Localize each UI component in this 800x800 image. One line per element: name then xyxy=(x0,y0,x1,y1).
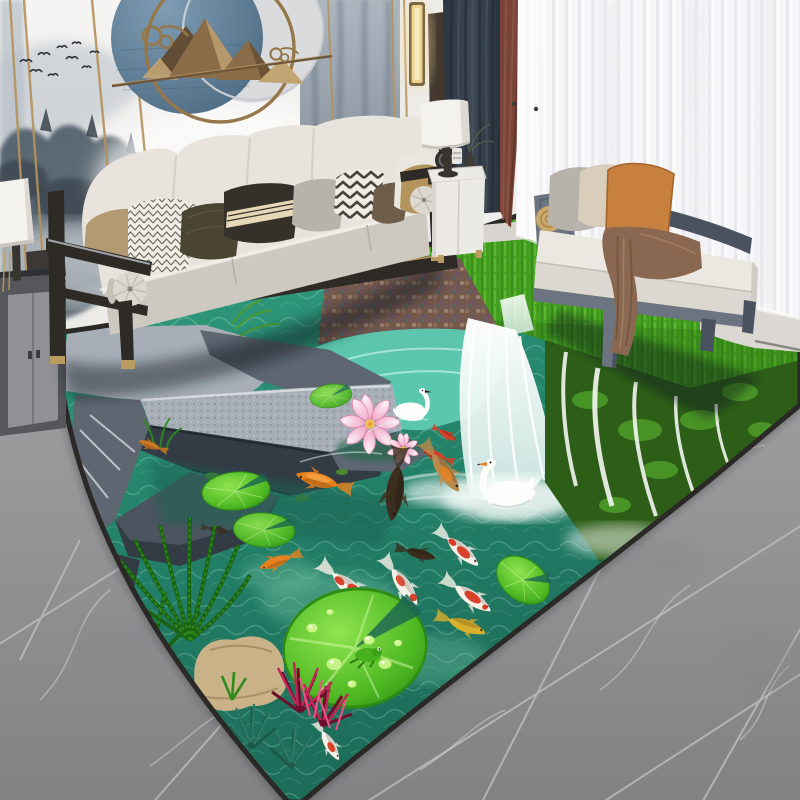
cabinet-handle xyxy=(28,351,32,359)
tan-rock xyxy=(194,636,286,710)
wall-sconce-light xyxy=(401,0,433,92)
living-room-scene xyxy=(0,0,800,800)
product-photo xyxy=(0,0,800,800)
decor-spool xyxy=(452,148,462,164)
curtain-magnet xyxy=(512,102,516,106)
curtain-magnet xyxy=(534,107,538,111)
cabinet-handle xyxy=(36,350,40,358)
pillow-black-band xyxy=(224,183,300,243)
